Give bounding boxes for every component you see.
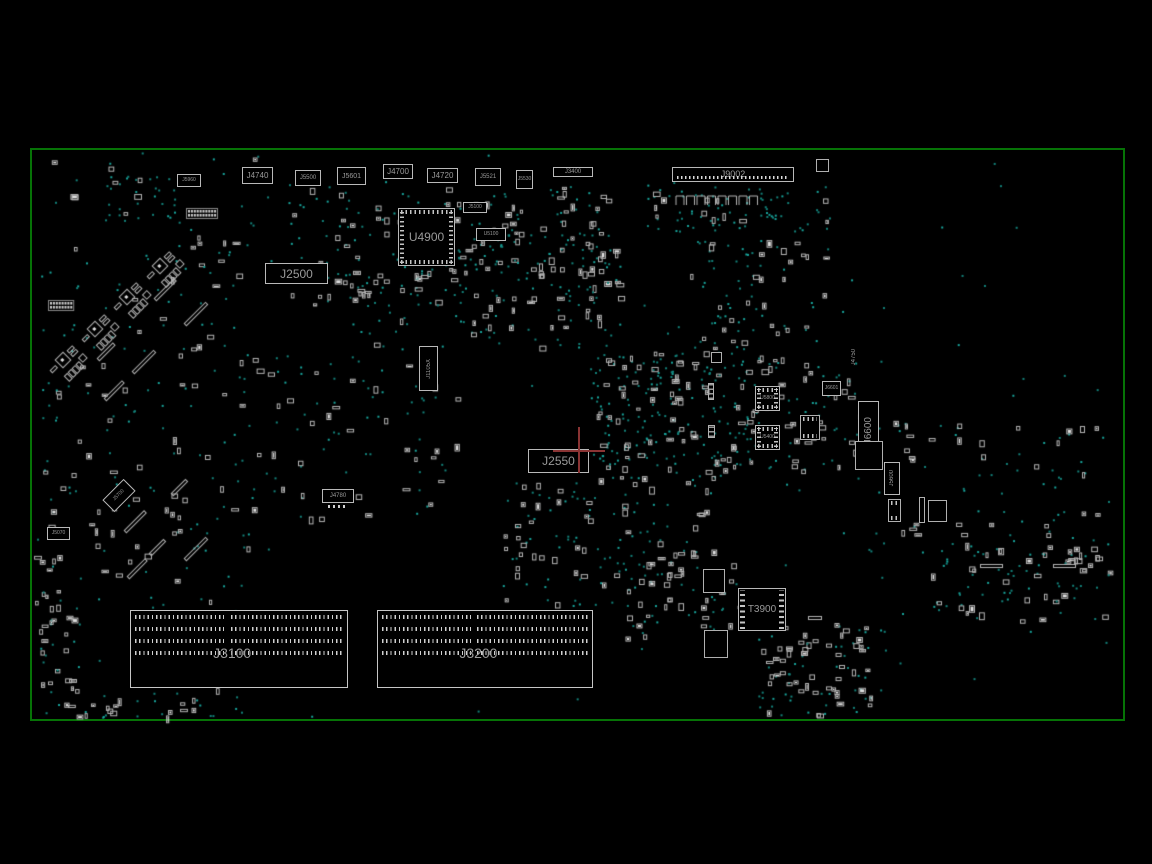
slot-pad-row bbox=[477, 639, 587, 643]
chip-pins bbox=[757, 428, 761, 447]
component-label: U5100 bbox=[484, 232, 499, 237]
component-label: U5800 bbox=[760, 396, 775, 401]
component-label: J5521 bbox=[480, 174, 496, 180]
component-outline-box[interactable] bbox=[711, 352, 722, 363]
component-j1105x[interactable]: J1105X bbox=[419, 346, 438, 391]
chip-pins bbox=[803, 434, 817, 438]
chip-pins bbox=[401, 210, 452, 214]
slot-pad-row bbox=[382, 651, 471, 655]
memory-slot-j3100[interactable]: J3100 bbox=[130, 610, 348, 688]
pin-strip-connector[interactable] bbox=[708, 425, 715, 438]
component-j5500[interactable]: J5500 bbox=[295, 170, 321, 186]
component-j6601[interactable]: J6601 bbox=[822, 381, 841, 396]
component-outline-box[interactable] bbox=[919, 497, 925, 523]
component-label: J2550 bbox=[542, 455, 575, 467]
chip-pins bbox=[400, 211, 404, 263]
component-label: J5601 bbox=[342, 173, 361, 180]
component-layer: J5960J4740J5500J5601J4700J4720J5521J5530… bbox=[0, 0, 1152, 864]
slot-pad-row bbox=[382, 639, 471, 643]
slot-pad-row bbox=[382, 627, 471, 631]
chip-pins bbox=[401, 260, 452, 264]
component-j4700[interactable]: J4700 bbox=[383, 164, 413, 179]
component-j5600[interactable]: J5600 bbox=[884, 462, 900, 495]
component-j4750[interactable]: J4750 bbox=[848, 343, 859, 371]
chip-pins bbox=[449, 211, 453, 263]
component-j2500[interactable]: J2500 bbox=[265, 263, 328, 284]
component-label: J4700 bbox=[387, 168, 409, 176]
component-outline-box[interactable] bbox=[704, 630, 728, 658]
slot-pad-row bbox=[135, 639, 224, 643]
component-u5400[interactable]: U5400 bbox=[755, 425, 780, 450]
component-label: J4720 bbox=[432, 172, 454, 180]
memory-slot-j3200[interactable]: J3200 bbox=[377, 610, 593, 688]
component-label: J1105X bbox=[426, 359, 432, 379]
slot-label: J3100 bbox=[213, 645, 251, 661]
chip-pins bbox=[803, 417, 817, 421]
slot-label: J3200 bbox=[459, 645, 497, 661]
header-pin-row bbox=[677, 176, 789, 179]
component-j5530[interactable]: J5530 bbox=[516, 170, 533, 189]
component-label: J5500 bbox=[300, 175, 316, 181]
component-u5100[interactable]: U5100 bbox=[476, 228, 506, 241]
component-label: J5100 bbox=[468, 205, 482, 210]
chip-pins bbox=[757, 389, 761, 408]
slot-pad-row bbox=[477, 627, 587, 631]
component-label: J5600 bbox=[889, 470, 895, 486]
slot-pad-row bbox=[135, 627, 224, 631]
slot-pad-row bbox=[231, 627, 342, 631]
slot-pad-row bbox=[231, 615, 342, 619]
component-j5960[interactable]: J5960 bbox=[177, 174, 201, 187]
component-label: J3400 bbox=[565, 169, 581, 175]
slot-pad-row bbox=[231, 639, 342, 643]
component-j5070[interactable]: J5070 bbox=[47, 527, 70, 540]
transformer-pins bbox=[779, 590, 784, 629]
transformer-pins bbox=[740, 590, 745, 629]
component-j5521[interactable]: J5521 bbox=[475, 168, 501, 186]
component-label: U4900 bbox=[409, 231, 444, 243]
chip-pins bbox=[891, 516, 898, 520]
chip-pins bbox=[774, 428, 778, 447]
component-j9002[interactable]: J9002 bbox=[672, 167, 794, 182]
component-outline-box[interactable] bbox=[888, 499, 901, 522]
component-j4740[interactable]: J4740 bbox=[242, 167, 273, 184]
component-u4900[interactable]: U4900 bbox=[398, 208, 455, 266]
component-label: U5400 bbox=[760, 435, 775, 440]
component-outline-box[interactable] bbox=[816, 159, 829, 172]
slot-pad-row bbox=[135, 651, 224, 655]
slot-pad-row bbox=[382, 615, 471, 619]
component-label: J4780 bbox=[330, 493, 346, 499]
component-j4780[interactable]: J4780 bbox=[322, 489, 354, 503]
component-outline-box[interactable] bbox=[703, 569, 725, 593]
component-u5800[interactable]: U5800 bbox=[755, 386, 780, 411]
component-label: J5700 bbox=[112, 489, 125, 502]
pin-strip-connector[interactable] bbox=[708, 383, 714, 400]
component-j3400[interactable]: J3400 bbox=[553, 167, 593, 177]
component-label: J5960 bbox=[182, 178, 196, 183]
chip-pins bbox=[891, 501, 898, 505]
component-j5601[interactable]: J5601 bbox=[337, 167, 366, 185]
component-j4720[interactable]: J4720 bbox=[427, 168, 458, 183]
slot-pad-row bbox=[135, 615, 224, 619]
chip-pins bbox=[774, 389, 778, 408]
component-j5700[interactable]: J5700 bbox=[102, 479, 135, 512]
component-outline-box[interactable] bbox=[855, 441, 883, 470]
component-j5100[interactable]: J5100 bbox=[463, 202, 487, 213]
component-label: J5530 bbox=[518, 177, 532, 182]
component-pin-strip bbox=[328, 505, 348, 508]
component-label: J5070 bbox=[52, 531, 66, 536]
component-label: J2500 bbox=[280, 268, 313, 280]
slot-pad-row bbox=[477, 615, 587, 619]
component-label: J4750 bbox=[851, 349, 857, 365]
selection-crosshair-horizontal bbox=[553, 450, 605, 452]
component-label: J4740 bbox=[247, 172, 269, 180]
component-label: J6601 bbox=[825, 386, 839, 391]
component-outline-box[interactable] bbox=[800, 415, 820, 440]
component-t3900[interactable]: T3900 bbox=[738, 588, 786, 631]
boardview-canvas-stage: J5960J4740J5500J5601J4700J4720J5521J5530… bbox=[0, 0, 1152, 864]
component-label: T3900 bbox=[748, 605, 776, 615]
component-outline-box[interactable] bbox=[928, 500, 947, 522]
